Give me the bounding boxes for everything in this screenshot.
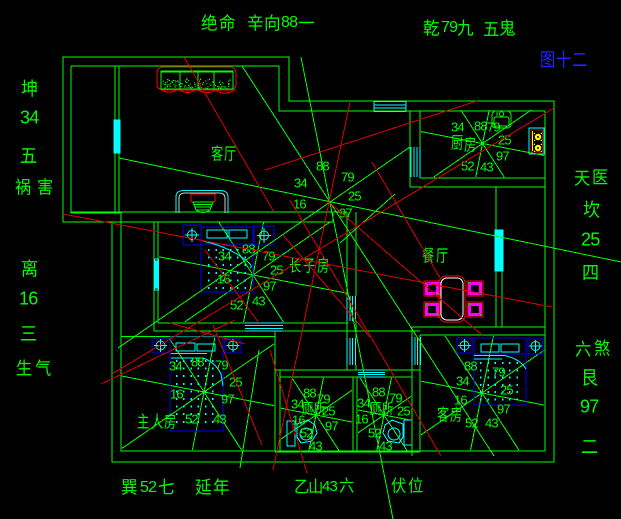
svg-text:34: 34 [218,249,231,264]
svg-text:25: 25 [500,383,513,398]
svg-text:16: 16 [19,288,38,308]
svg-text:88: 88 [474,119,487,134]
svg-text:34: 34 [291,397,304,412]
svg-text:16: 16 [170,387,183,402]
svg-text:97: 97 [263,279,276,294]
svg-text:52: 52 [140,479,157,496]
svg-text:88: 88 [464,359,477,374]
svg-text:97: 97 [497,402,510,417]
svg-text:97: 97 [580,396,599,416]
svg-text:43: 43 [485,416,498,431]
svg-text:97: 97 [496,149,509,164]
svg-text:25: 25 [581,229,600,249]
svg-text:79: 79 [492,365,505,380]
svg-text:34: 34 [294,176,307,191]
svg-text:79: 79 [215,358,228,373]
svg-text:34: 34 [20,107,39,127]
svg-text:16: 16 [355,412,368,427]
svg-text:79: 79 [262,249,275,264]
svg-text:88: 88 [191,355,204,370]
svg-text:79: 79 [341,170,354,185]
svg-text:34: 34 [456,374,469,389]
svg-text:88: 88 [281,14,298,31]
svg-text:88: 88 [372,385,385,400]
svg-text:43: 43 [213,412,226,427]
svg-text:16: 16 [217,272,230,287]
svg-text:97: 97 [221,392,234,407]
svg-text:52: 52 [461,159,474,174]
svg-text:97: 97 [325,419,338,434]
svg-text:25: 25 [348,189,361,204]
svg-text:43: 43 [379,439,392,454]
svg-text:25: 25 [397,404,410,419]
svg-text:88: 88 [316,159,329,174]
svg-text:52: 52 [185,412,198,427]
svg-text:34: 34 [169,359,182,374]
svg-text:79: 79 [441,19,458,36]
svg-text:43: 43 [252,294,265,309]
svg-text:88: 88 [303,386,316,401]
svg-text:43: 43 [309,439,322,454]
svg-text:25: 25 [229,375,242,390]
svg-text:43: 43 [322,478,338,495]
svg-text:34: 34 [451,120,464,135]
svg-text:25: 25 [322,404,335,419]
svg-text:43: 43 [480,160,493,175]
